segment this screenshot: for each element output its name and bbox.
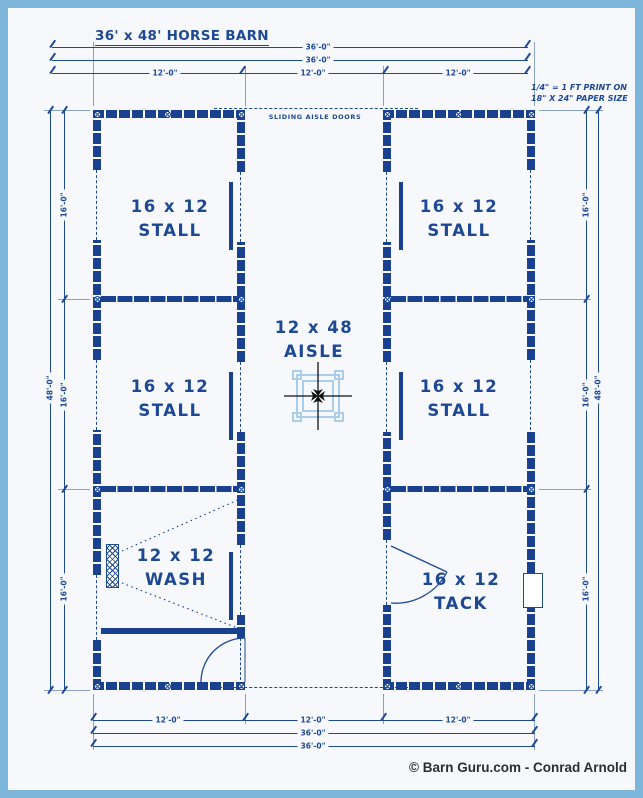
scale-note: 1/4" = 1 FT PRINT ON 18" X 24" PAPER SIZ…: [531, 82, 628, 104]
dim-label: 16'-0": [582, 574, 591, 605]
post-marker-icon: [455, 683, 462, 690]
wall-right-aisle-side: [383, 605, 391, 690]
room-label-tack: 16 x 12 TACK: [422, 568, 501, 616]
room-name: WASH: [137, 568, 216, 592]
page-title: 36' x 48' HORSE BARN: [95, 28, 269, 46]
wash-fixture-hatch: [106, 544, 119, 588]
wall-wash-rear: [101, 628, 245, 634]
sliding-door-panel: [229, 552, 233, 620]
witness-line: [534, 694, 535, 750]
room-size: 16 x 12: [131, 195, 210, 219]
stall-door-opening: [240, 172, 241, 242]
dim-label: 36'-0": [303, 56, 334, 65]
wall-left-aisle-side: [237, 615, 245, 638]
post-marker-icon: [384, 111, 391, 118]
wall-left-aisle-side: [237, 110, 245, 172]
room-label-aisle: 12 x 48 AISLE: [275, 316, 354, 364]
floor-drain-icon: [292, 412, 302, 422]
sliding-door-panel: [399, 372, 403, 440]
sliding-aisle-door-line-bottom: [214, 687, 418, 688]
room-label-stall-mid-left: 16 x 12 STALL: [131, 375, 210, 423]
stall-door-opening: [386, 172, 387, 242]
room-size: 16 x 12: [422, 568, 501, 592]
post-marker-icon: [94, 486, 101, 493]
witness-line: [539, 489, 591, 490]
post-marker-icon: [164, 683, 171, 690]
dim-label: 48'-0": [594, 373, 603, 404]
post-marker-icon: [528, 111, 535, 118]
sliding-aisle-doors-label: SLIDING AISLE DOORS: [269, 113, 362, 121]
post-marker-icon: [455, 111, 462, 118]
room-size: 12 x 12: [137, 544, 216, 568]
wall-left-exterior: [93, 110, 101, 170]
dim-label: 16'-0": [60, 574, 69, 605]
floor-drain-icon: [292, 370, 302, 380]
post-marker-icon: [384, 486, 391, 493]
wall-stall-divider: [101, 486, 245, 492]
dutch-door-opening: [96, 170, 97, 240]
post-marker-icon: [238, 111, 245, 118]
dim-label: 16'-0": [582, 190, 591, 221]
floor-drain-icon: [302, 380, 334, 412]
witness-line: [93, 694, 94, 750]
post-marker-icon: [528, 296, 535, 303]
witness-line: [383, 694, 384, 724]
tack-door-opening: [386, 540, 387, 605]
tack-window: [523, 573, 543, 608]
witness-line: [539, 299, 591, 300]
sliding-door-panel: [229, 182, 233, 250]
dim-label: 16'-0": [60, 190, 69, 221]
sliding-aisle-door-line-top: [214, 108, 418, 109]
witness-line: [383, 66, 384, 106]
dim-label: 12'-0": [150, 69, 181, 78]
room-name: STALL: [420, 399, 499, 423]
room-size: 16 x 12: [131, 375, 210, 399]
room-label-stall-mid-right: 16 x 12 STALL: [420, 375, 499, 423]
stall-door-opening: [386, 362, 387, 432]
dutch-door-opening: [530, 360, 531, 430]
room-name: STALL: [131, 399, 210, 423]
room-label-stall-top-right: 16 x 12 STALL: [420, 195, 499, 243]
witness-line: [539, 110, 603, 111]
copyright-text: © Barn Guru.com - Conrad Arnold: [409, 760, 627, 775]
dim-label: 48'-0": [46, 373, 55, 404]
dim-label: 12'-0": [153, 716, 184, 725]
wall-stall-divider: [391, 486, 535, 492]
post-marker-icon: [238, 296, 245, 303]
dim-label: 36'-0": [298, 742, 329, 751]
witness-line: [534, 42, 535, 106]
witness-line: [58, 489, 90, 490]
wall-right-exterior: [527, 608, 535, 690]
room-label-wash: 12 x 12 WASH: [137, 544, 216, 592]
room-name: STALL: [131, 219, 210, 243]
wall-stall-divider: [101, 296, 245, 302]
room-size: 12 x 48: [275, 316, 354, 340]
dim-label: 12'-0": [298, 716, 329, 725]
witness-line: [44, 690, 90, 691]
witness-line: [58, 299, 90, 300]
wall-right-aisle-side: [383, 110, 391, 172]
room-name: STALL: [420, 219, 499, 243]
floor-drain-icon: [334, 412, 344, 422]
witness-line: [93, 42, 94, 106]
dim-label: 16'-0": [60, 380, 69, 411]
scale-note-line1: 1/4" = 1 FT PRINT ON: [531, 82, 628, 93]
dim-label: 36'-0": [298, 729, 329, 738]
post-marker-icon: [94, 111, 101, 118]
dim-line-top-overall-1: [52, 47, 528, 48]
sliding-door-panel: [399, 182, 403, 250]
post-marker-icon: [528, 486, 535, 493]
dim-label: 12'-0": [443, 69, 474, 78]
room-name: AISLE: [275, 340, 354, 364]
wash-door-opening: [240, 545, 241, 615]
witness-line: [245, 66, 246, 106]
post-marker-icon: [528, 683, 535, 690]
dim-label: 12'-0": [298, 69, 329, 78]
witness-line: [44, 110, 90, 111]
post-marker-icon: [94, 296, 101, 303]
post-marker-icon: [94, 683, 101, 690]
room-size: 16 x 12: [420, 195, 499, 219]
post-marker-icon: [384, 296, 391, 303]
scale-note-line2: 18" X 24" PAPER SIZE: [531, 93, 628, 104]
wall-right-exterior: [527, 110, 535, 170]
witness-line: [245, 694, 246, 724]
room-size: 16 x 12: [420, 375, 499, 399]
dutch-door-opening: [96, 360, 97, 430]
sliding-door-panel: [229, 372, 233, 440]
dim-label: 36'-0": [303, 43, 334, 52]
stall-door-opening: [240, 362, 241, 432]
dutch-door-opening: [530, 170, 531, 240]
witness-line: [539, 690, 603, 691]
wall-stall-divider: [391, 296, 535, 302]
wall-right-exterior: [527, 430, 535, 573]
dim-line-top-overall-2: [52, 60, 528, 61]
post-marker-icon: [164, 111, 171, 118]
corridor-door-opening: [240, 638, 241, 680]
wall-left-exterior: [93, 430, 101, 575]
post-marker-icon: [238, 486, 245, 493]
blueprint-page: 36' x 48' HORSE BARN 1/4" = 1 FT PRINT O…: [0, 0, 643, 798]
dim-label: 12'-0": [443, 716, 474, 725]
room-label-stall-top-left: 16 x 12 STALL: [131, 195, 210, 243]
floor-drain-icon: [334, 370, 344, 380]
room-name: TACK: [422, 592, 501, 616]
dim-label: 16'-0": [582, 380, 591, 411]
dutch-door-opening: [96, 575, 97, 640]
